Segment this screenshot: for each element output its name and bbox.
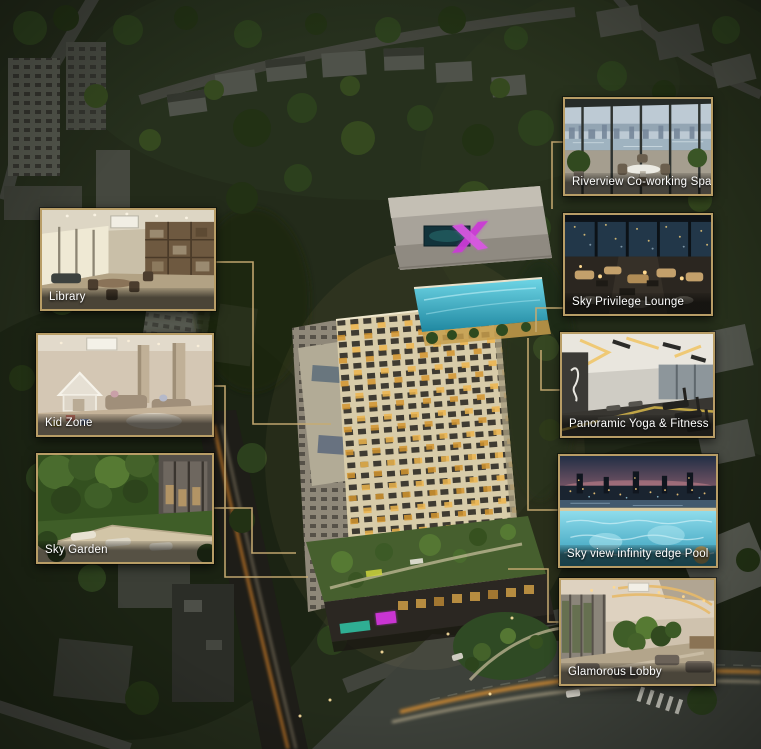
callout-label-panoramic-yoga-fitness: Panoramic Yoga & Fitness: [562, 415, 713, 436]
callout-panoramic-yoga-fitness: Panoramic Yoga & Fitness: [560, 332, 715, 438]
callout-label-sky-privilege-lounge: Sky Privilege Lounge: [565, 293, 711, 314]
callout-label-glamorous-lobby: Glamorous Lobby: [561, 663, 714, 684]
callout-label-riverview-coworking: Riverview Co-working Space: [565, 173, 711, 194]
callout-riverview-coworking: Riverview Co-working Space: [563, 97, 713, 196]
callout-label-library: Library: [42, 288, 214, 309]
callout-sky-garden: Sky Garden: [36, 453, 214, 564]
callout-sky-view-pool: Sky view infinity edge Pool: [558, 454, 718, 568]
callout-label-kid-zone: Kid Zone: [38, 414, 212, 435]
callout-label-sky-view-pool: Sky view infinity edge Pool: [560, 545, 716, 566]
callout-sky-privilege-lounge: Sky Privilege Lounge: [563, 213, 713, 316]
callout-kid-zone: Kid Zone: [36, 333, 214, 437]
callout-library: Library: [40, 208, 216, 311]
callout-label-sky-garden: Sky Garden: [38, 541, 212, 562]
amenities-overview-image: Library Kid Zone: [0, 0, 761, 749]
callout-glamorous-lobby: Glamorous Lobby: [559, 578, 716, 686]
